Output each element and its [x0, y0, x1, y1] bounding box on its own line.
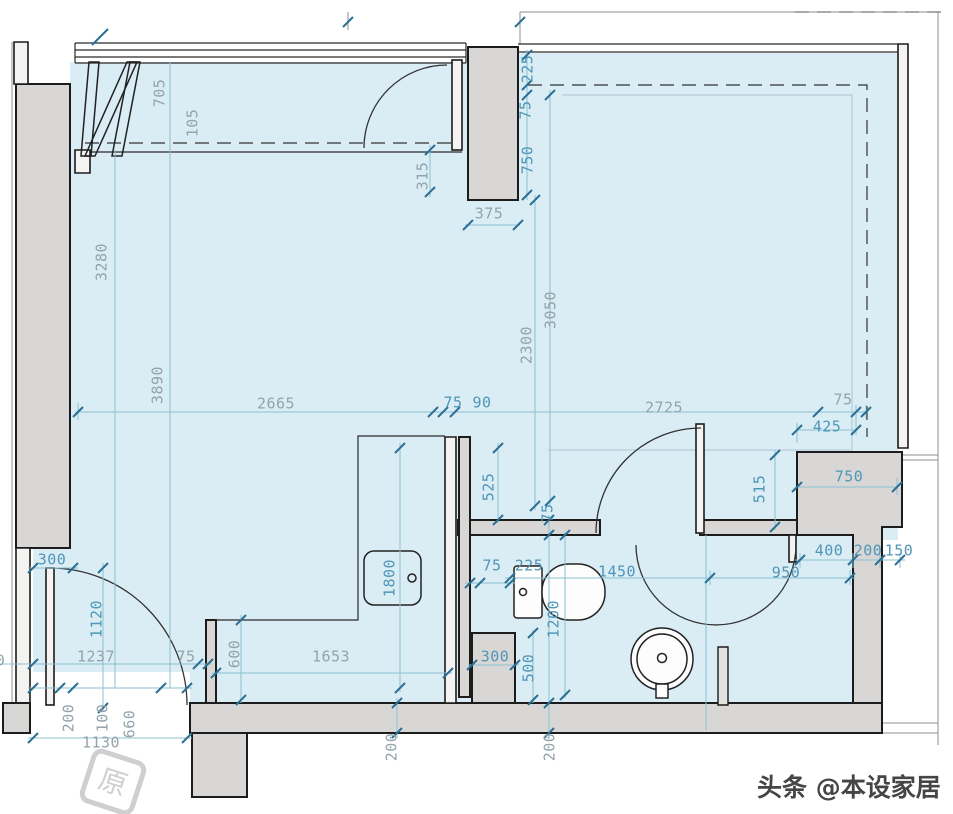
left-wall-upper: [14, 42, 28, 84]
balcony-door-leaf: [452, 60, 462, 150]
dimension-label: 1800: [381, 559, 399, 597]
dimension-label: 375: [475, 205, 504, 223]
dimension-label: 950: [772, 564, 801, 582]
dimension-label: 750: [519, 146, 537, 175]
dimension-label: 75: [517, 100, 535, 119]
dimension-label: 2665: [257, 395, 295, 413]
partition-wall-b: [459, 437, 470, 697]
dimension-label: 75: [539, 503, 557, 522]
dimension-label: 660: [121, 710, 139, 739]
left-pillar-wall: [16, 84, 70, 548]
entry-side-block: [3, 703, 30, 733]
dimension-label: 225: [519, 55, 537, 84]
bottom-wall: [190, 703, 882, 733]
watermark-logo-glyph: 原: [94, 762, 131, 802]
bath-half-wall: [718, 647, 728, 705]
bottom-left-step-block: [192, 733, 247, 797]
big-room-right-wall: [898, 44, 908, 448]
partition-wall-a: [445, 437, 456, 703]
dimension-label: 315: [414, 162, 432, 191]
dimension-label: 105: [184, 109, 202, 138]
dimension-label: 425: [813, 418, 842, 436]
floor-plan-drawing: 7051053153752257575032803890230030502665…: [0, 0, 953, 814]
dimension-label: 200: [383, 733, 401, 762]
dimension-label: 400: [815, 542, 844, 560]
dimension-label: 525: [480, 473, 498, 502]
floor-plan-screenshot: 7051053153752257575032803890230030502665…: [0, 0, 953, 814]
dimension-label: 600: [226, 640, 244, 669]
watermark-logo: 原: [80, 749, 146, 814]
top-column: [468, 47, 518, 200]
dimension-label: 1450: [598, 563, 636, 581]
dimension-label: 3890: [149, 366, 167, 404]
dimension-label: 200: [541, 733, 559, 762]
dimension-label: 750: [835, 468, 864, 486]
dimension-label: 225: [515, 557, 544, 575]
big-room-top-wall: [518, 44, 898, 52]
entry-door-leaf: [46, 568, 54, 705]
dimension-label: 1120: [88, 600, 106, 638]
bath-wall-left: [458, 520, 600, 535]
dimension-label: 200: [0, 652, 5, 670]
watermark-byline: 头条 @本设家居 头条 @本设家居: [757, 773, 943, 804]
dimension-label: 75: [482, 557, 501, 575]
basin-faucet-icon: [656, 684, 668, 698]
watermark-byline-text: 头条 @本设家居: [757, 773, 941, 802]
dimension-label: 3280: [93, 243, 111, 281]
dimension-label: 705: [151, 79, 169, 108]
balcony-window: [75, 43, 466, 63]
dimension-label: 1200: [545, 600, 563, 638]
dimension-label: 515: [751, 475, 769, 504]
dimension-label: 300: [481, 648, 510, 666]
balcony-step: [75, 150, 90, 173]
left-wall-lower: [16, 548, 30, 703]
dimension-label: 1237: [77, 648, 115, 666]
dimension-label: 90: [472, 394, 491, 412]
bath-pier-block: [472, 633, 515, 703]
dimension-label: 150: [885, 542, 914, 560]
dimension-label: 300: [38, 551, 67, 569]
dimension-label: 75: [443, 394, 462, 412]
dimension-label: 100: [94, 704, 112, 733]
dimension-label: 2300: [518, 326, 536, 364]
dimension-label: 200: [60, 704, 78, 733]
dimension-label: 200: [854, 542, 883, 560]
dimension-label: 75: [833, 391, 852, 409]
dimension-label: 75: [176, 648, 195, 666]
dimension-label: 1653: [312, 648, 350, 666]
dimension-label: 3050: [542, 291, 560, 329]
dimension-label: 2725: [645, 399, 683, 417]
dimension-label: 500: [520, 654, 538, 683]
bathroom-door-leaf: [696, 424, 704, 533]
